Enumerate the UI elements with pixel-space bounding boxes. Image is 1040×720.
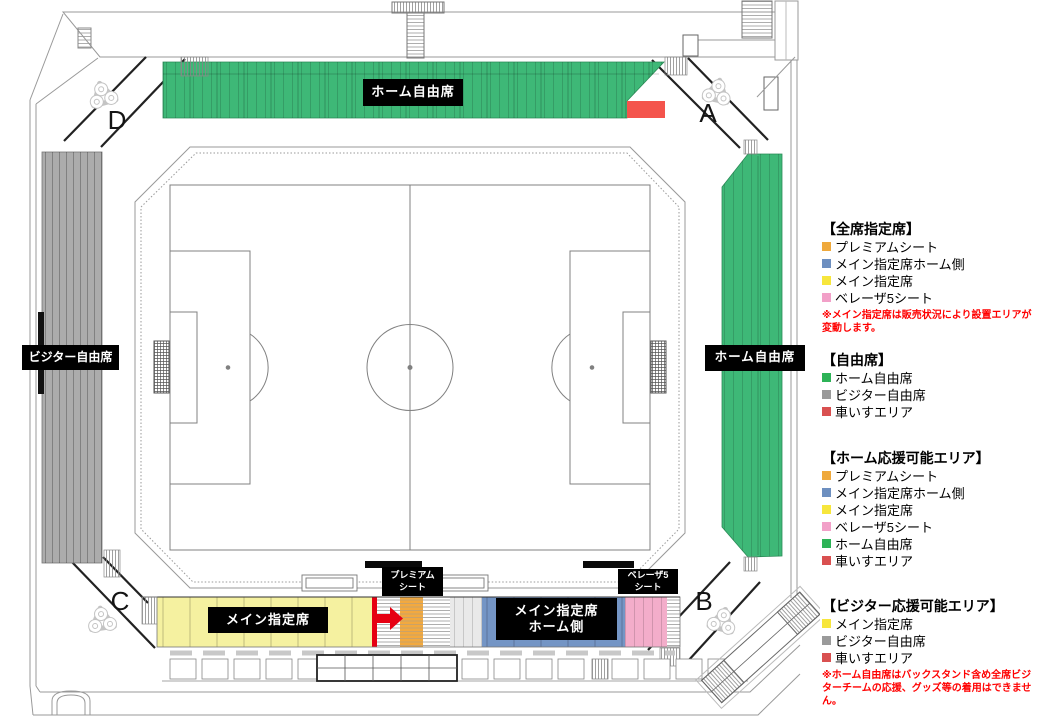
legend-section-title: 【自由席】 [822,351,1038,369]
color-swatch [822,556,831,565]
legend-section-visitor-support: 【ビジター応援可能エリア】 メイン指定席 ビジター自由席 車いすエリア ※ホーム… [822,597,1038,708]
legend-item: プレミアムシート [822,238,1038,255]
color-swatch [822,539,831,548]
color-swatch [822,293,831,302]
legend-section-home-support: 【ホーム応援可能エリア】 プレミアムシート メイン指定席ホーム側 メイン指定席 [822,449,1038,569]
goal-left [154,341,169,393]
legend-section-title: 【ビジター応援可能エリア】 [822,597,1038,615]
legend-item: プレミアムシート [822,467,1038,484]
color-swatch [822,390,831,399]
legend-note: ※ホーム自由席はバックスタンド含め全席ビジターチームの応援、グッズ等の着用はでき… [822,669,1038,708]
legend-item: 車いすエリア [822,552,1038,569]
section-divider-red [372,597,377,647]
wheelchair-area-north [627,101,665,118]
legend-item: ビジター自由席 [822,632,1038,649]
soccer-pitch [154,185,666,550]
legend-item: ベレーザ5シート [822,518,1038,535]
legend-note: ※メイン指定席は販売状況により設置エリアが変動します。 [822,309,1038,335]
legend-item-label: 車いすエリア [835,402,913,421]
corner-letter-a: A [693,98,723,128]
color-swatch [822,276,831,285]
color-swatch [822,242,831,251]
legend-section-free: 【自由席】 ホーム自由席 ビジター自由席 車いすエリア [822,351,1038,420]
color-swatch [822,407,831,416]
legend-item: ホーム自由席 [822,535,1038,552]
legend-item: メイン指定席 [822,272,1038,289]
legend-section-title: 【全席指定席】 [822,220,1038,238]
label-main-home-side: メイン指定席 ホーム側 [496,598,617,640]
legend-item-list: プレミアムシート メイン指定席ホーム側 メイン指定席 ベレーザ5シート [822,238,1038,306]
legend-item: メイン指定席ホーム側 [822,255,1038,272]
corner-letter-c: C [105,586,135,616]
color-swatch [822,373,831,382]
legend-item-label: 車いすエリア [835,648,913,667]
board-right [583,561,634,568]
bench-left [302,575,357,591]
color-swatch [822,653,831,662]
penalty-spot-right [590,366,594,370]
legend-item-list: ホーム自由席 ビジター自由席 車いすエリア [822,369,1038,420]
legend-item-list: メイン指定席 ビジター自由席 車いすエリア [822,615,1038,666]
legend-item-list: プレミアムシート メイン指定席ホーム側 メイン指定席 ベレーザ5シート [822,467,1038,569]
color-swatch [822,636,831,645]
legend-item: メイン指定席ホーム側 [822,484,1038,501]
legend-item: ホーム自由席 [822,369,1038,386]
north-stair-tower [392,2,444,58]
stadium-seatmap-page: { "corners": { "top_left": "D", "top_rig… [0,0,1040,720]
label-beleza5-seat: ベレーザ5 シート [618,569,678,594]
goal-right [651,341,666,393]
legend-item: メイン指定席 [822,501,1038,518]
center-spot [408,366,412,370]
legend-item-label: ベレーザ5シート [835,288,933,307]
color-swatch [822,522,831,531]
color-swatch [822,471,831,480]
legend-item: ビジター自由席 [822,386,1038,403]
legend-item-label: 車いすエリア [835,551,913,570]
label-premium-seat: プレミアム シート [382,567,443,596]
label-right-stand: ホーム自由席 [705,345,805,371]
legend-item: メイン指定席 [822,615,1038,632]
color-swatch [822,259,831,268]
corner-letter-b: B [689,586,719,616]
legend-item: ベレーザ5シート [822,289,1038,306]
legend-section-title: 【ホーム応援可能エリア】 [822,449,1038,467]
corner-letter-d: D [102,105,132,135]
color-swatch [822,619,831,628]
south-booths [162,655,748,681]
label-back-stand: ホーム自由席 [363,79,463,106]
label-left-stand: ビジター自由席 [22,345,119,370]
legend-item: 車いすエリア [822,649,1038,666]
legend-section-reserved: 【全席指定席】 プレミアムシート メイン指定席ホーム側 メイン指定席 [822,220,1038,335]
penalty-spot-left [226,366,230,370]
color-swatch [822,488,831,497]
legend-panel: 【全席指定席】 プレミアムシート メイン指定席ホーム側 メイン指定席 [822,220,1038,708]
legend-item: 車いすエリア [822,403,1038,420]
color-swatch [822,505,831,514]
label-main-reserved: メイン指定席 [208,607,328,633]
